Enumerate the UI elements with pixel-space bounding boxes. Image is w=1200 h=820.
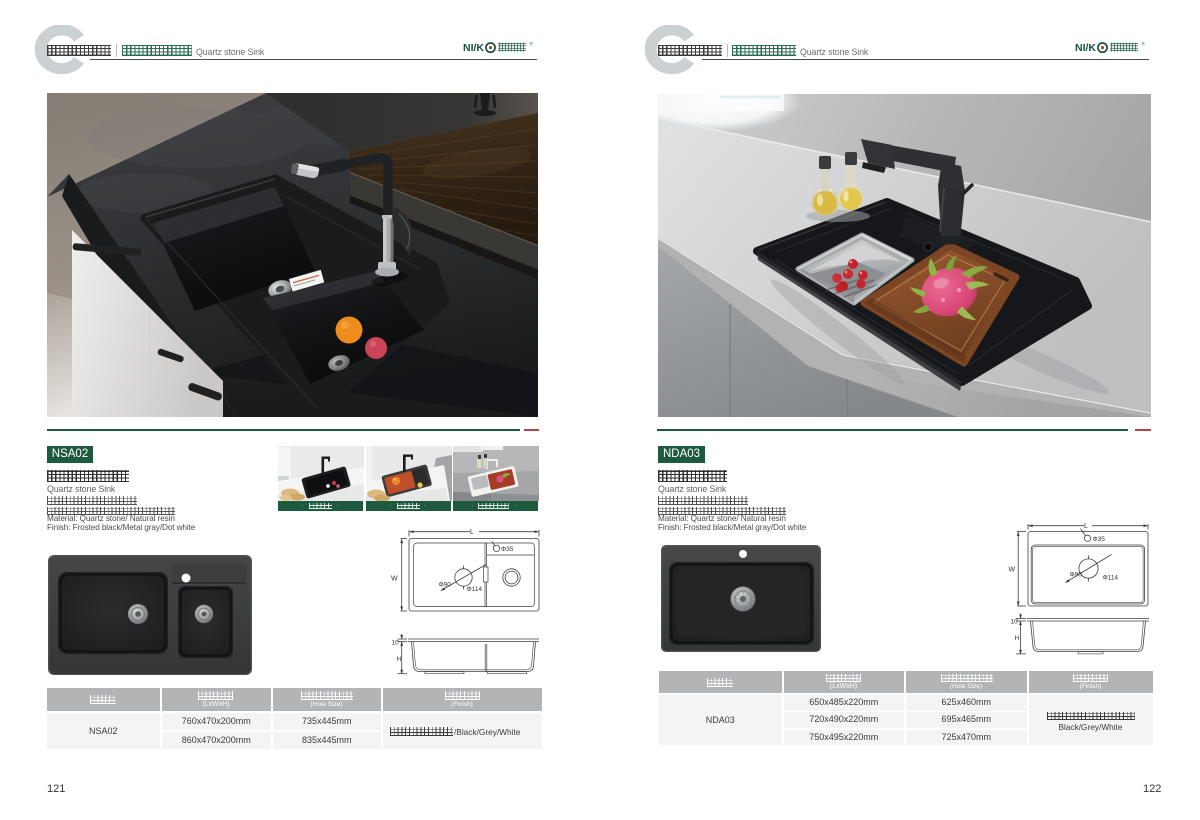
svg-text:H: H [397,656,402,663]
svg-text:Φ114: Φ114 [467,586,483,593]
svg-text:Φ35: Φ35 [501,546,514,553]
svg-text:Φ35: Φ35 [1093,536,1106,543]
svg-text:H: H [1015,635,1020,642]
svg-text:®: ® [530,41,534,47]
svg-text:W: W [1009,567,1016,574]
svg-text:L: L [470,529,474,536]
svg-text:10: 10 [392,640,400,647]
svg-text:10: 10 [1011,619,1019,626]
svg-text:W: W [391,576,398,583]
svg-text:Φ114: Φ114 [1103,575,1119,582]
svg-text:Φ90: Φ90 [1070,572,1083,579]
svg-text:NI/K: NI/K [463,42,484,54]
svg-text:NI/K: NI/K [1075,42,1096,54]
svg-text:L: L [1084,523,1088,530]
svg-text:®: ® [1142,41,1146,47]
svg-text:Φ90: Φ90 [439,582,452,589]
